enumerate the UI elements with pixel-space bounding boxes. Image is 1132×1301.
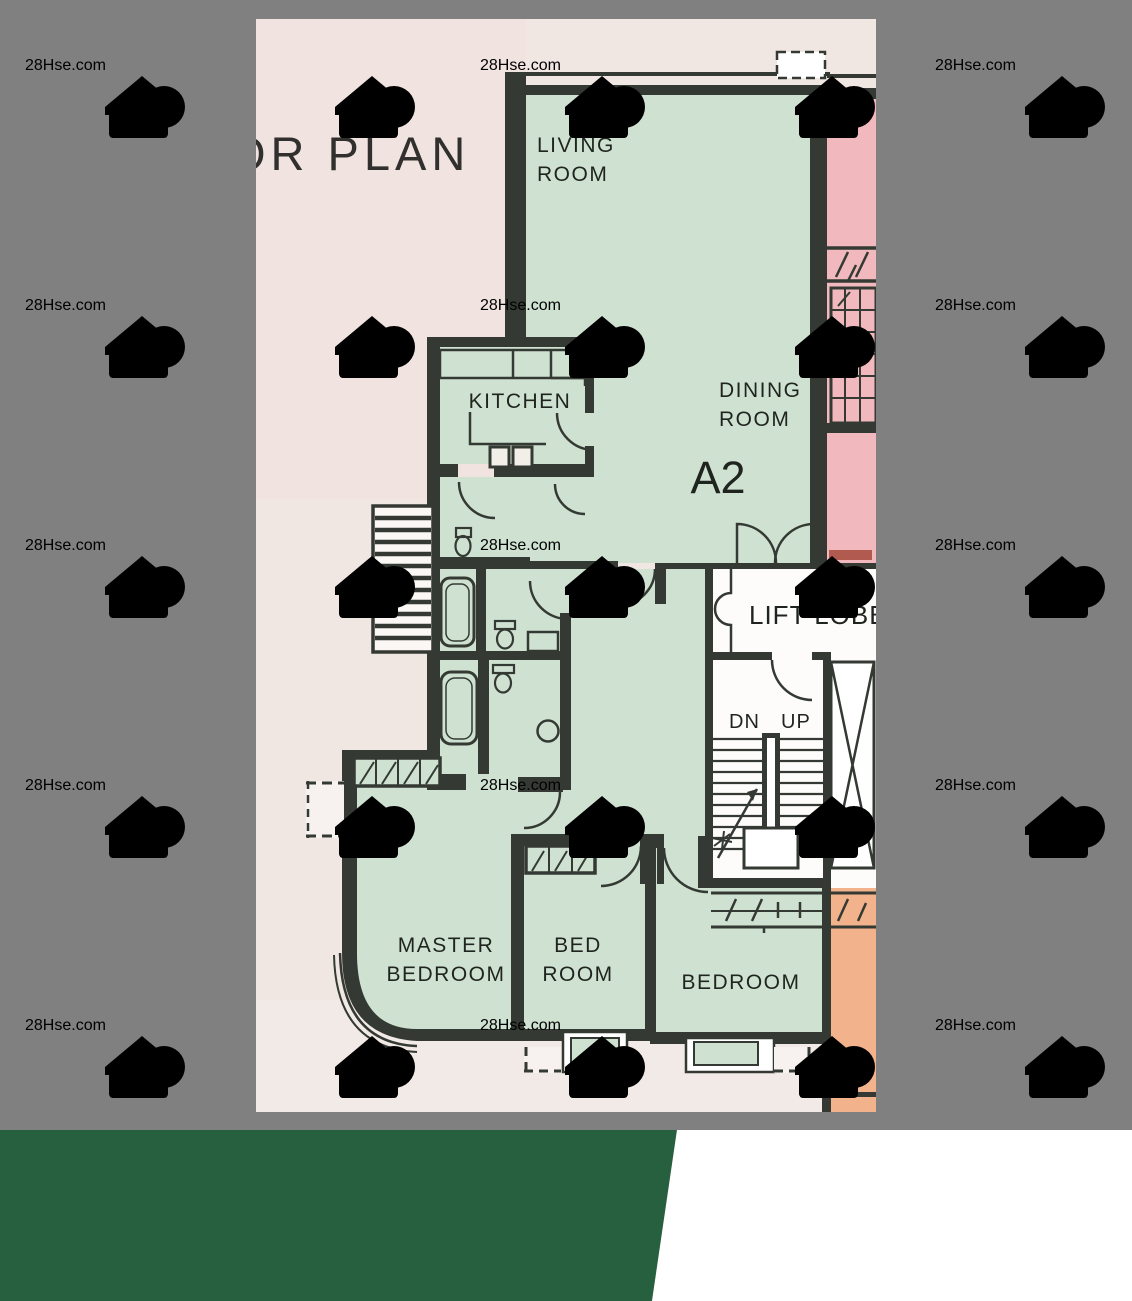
svg-text:A2: A2 (690, 452, 745, 503)
svg-text:MASTER: MASTER (398, 934, 495, 957)
svg-text:BEDROOM: BEDROOM (681, 971, 800, 994)
svg-text:DN: DN (729, 711, 760, 733)
svg-text:ROOM: ROOM (537, 163, 608, 186)
svg-text:BEDROOM: BEDROOM (386, 963, 505, 986)
svg-text:BED: BED (554, 934, 602, 957)
svg-text:KITCHEN: KITCHEN (469, 390, 572, 413)
svg-text:DINING: DINING (719, 379, 802, 402)
svg-text:ROOM: ROOM (719, 408, 790, 431)
svg-text:UP: UP (781, 711, 811, 733)
svg-text:ROOM: ROOM (542, 963, 613, 986)
